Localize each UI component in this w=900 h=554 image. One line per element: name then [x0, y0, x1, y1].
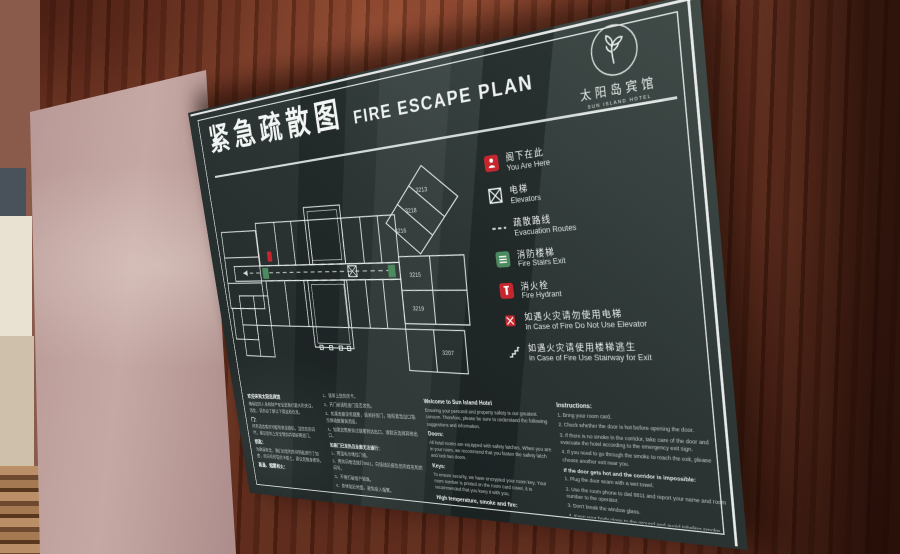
you-are-here-marker: [267, 251, 273, 261]
legend-item-text: 电梯Elevators: [509, 181, 542, 207]
legend-item-text: 如遇火灾请使用楼梯逃生In Case of Fire Use Stairway …: [527, 341, 652, 364]
text-column-instructions-en: Instructions:1. Bring your room card.2. …: [556, 399, 730, 533]
legend-label-en: In Case of Fire Do Not Use Elevator: [525, 320, 648, 333]
room-number-label: 3213: [415, 186, 428, 194]
floor-plan-drawing: 321332183216321532193207: [210, 151, 489, 391]
text-column-welcome-en: Welcome to Sun Island HotelEnsuring your…: [423, 396, 560, 516]
stairs-marker: [262, 268, 269, 279]
photo-of-fire-escape-plan-sign: 紧急疏散图 FIRE ESCAPE PLAN 太阳岛宾馆 SUN ISLAND …: [0, 0, 900, 554]
legend-item-text: 消防楼梯Fire Stairs Exit: [516, 245, 566, 271]
background-wood-slats: [0, 466, 42, 554]
legend-item-text: 消火栓Fire Hydrant: [520, 278, 562, 302]
background-object-dark: [0, 168, 26, 216]
hotel-logo-icon: [588, 19, 640, 80]
elevator-icon: [487, 187, 503, 205]
stairway-exit-icon: [506, 344, 522, 359]
stairs-icon: [495, 251, 511, 268]
hydrant-icon: [499, 282, 515, 298]
legend-item: 消防楼梯Fire Stairs Exit: [495, 234, 700, 272]
text-column-instructions-cn: 1、请带上您的房卡。2、开门前请检查门是否发热。3、如果走廊没有烟雾，请关好房门…: [322, 393, 430, 501]
paragraph: 确保您的人身和财产安全是我们最大的关注，因此，请务必了解以下建议和信息。: [248, 401, 319, 417]
plant-emblem-icon: [590, 21, 639, 78]
no-elevator-icon: [503, 313, 519, 329]
paragraph: 1、请带上您的房卡。: [322, 393, 417, 403]
room-number-label: 3215: [409, 271, 421, 278]
you-are-here-icon: [484, 154, 500, 172]
room-number-label: 3218: [405, 207, 418, 215]
legend-item-text: 如遇火灾请勿使用电梯In Case of Fire Do Not Use Ele…: [524, 307, 648, 333]
background-window-light: [0, 216, 32, 336]
floor-plan: 321332183216321532193207: [210, 151, 489, 391]
legend-label-en: Fire Stairs Exit: [518, 257, 566, 270]
legend-item: 消火栓Fire Hydrant: [499, 270, 703, 303]
legend-label-en: Fire Hydrant: [521, 290, 562, 302]
paragraph: 所有酒店客房均配有安全锁扣，当您在房间时，建议您扣上安全锁扣并锁好两道门。: [252, 424, 323, 441]
paragraph: Ensuring your personal and property safe…: [425, 407, 551, 434]
legend-item: 如遇火灾请使用楼梯逃生In Case of Fire Use Stairway …: [506, 340, 709, 364]
hotel-logo: 太阳岛宾馆 SUN ISLAND HOTEL: [562, 13, 671, 118]
room-number-label: 3216: [395, 227, 407, 234]
room-number-label: 3207: [442, 349, 455, 356]
legend-item: 如遇火灾请勿使用电梯In Case of Fire Do Not Use Ele…: [502, 305, 706, 334]
legend-label-cn: 如遇火灾请使用楼梯逃生: [527, 341, 651, 354]
route-icon: [491, 219, 507, 236]
background-object-beige: [0, 336, 34, 466]
legend: 阁下在此You Are Here电梯Elevators疏散路线Evacuatio…: [483, 124, 710, 375]
legend-label-en: In Case of Fire Use Stairway for Exit: [529, 354, 653, 365]
room-number-label: 3219: [412, 305, 424, 312]
stairs-marker: [388, 265, 396, 277]
legend-item-text: 疏散路线Evacuation Routes: [513, 210, 577, 239]
